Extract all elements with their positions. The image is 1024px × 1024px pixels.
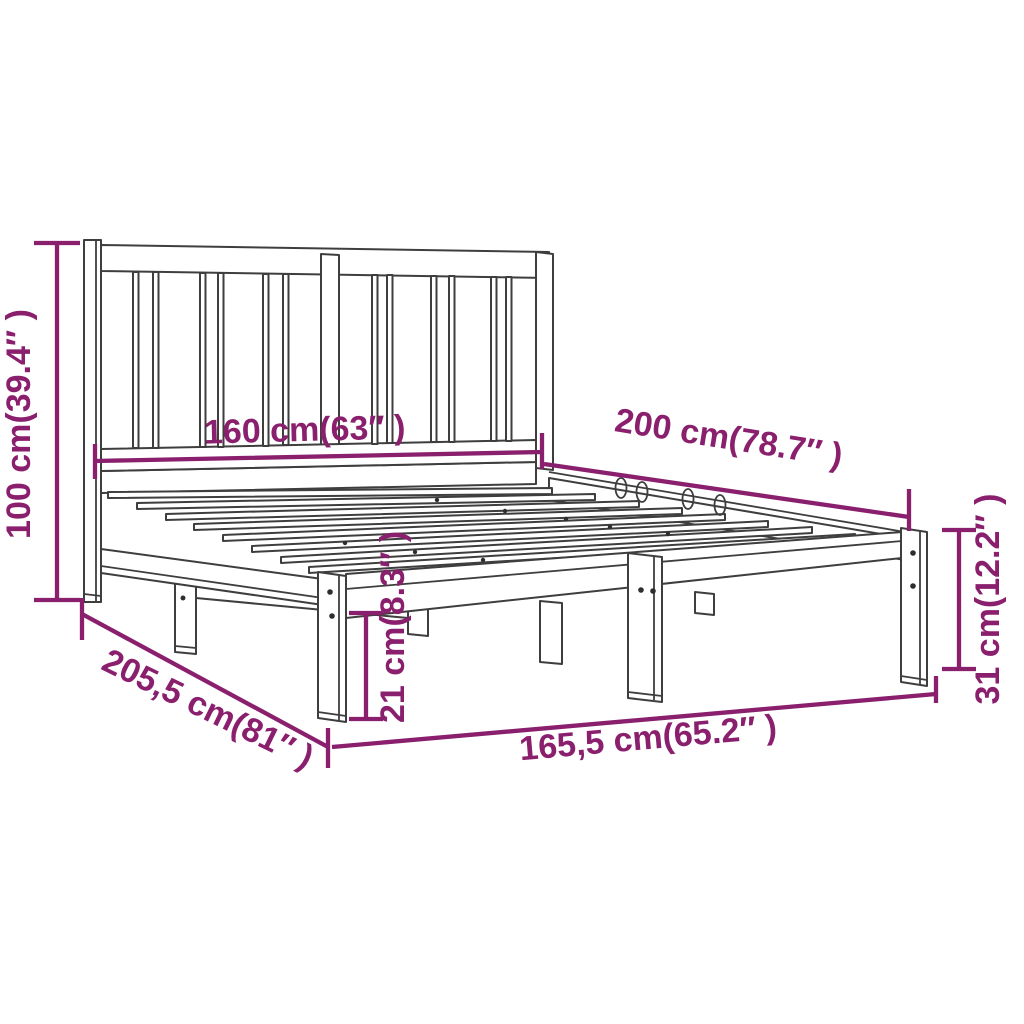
leg-screw [327,589,333,595]
leg-screw [650,588,656,594]
headboard-slat [133,272,139,448]
dimension-label-bed-length: 200 cm(78.7″ ) [612,401,845,474]
headboard-slat [153,272,159,448]
slat-screw [608,525,612,529]
dimension-label-total-length: 205,5 cm(81″ ) [96,642,319,777]
slat-screw [435,498,439,502]
frame-foot-rail [346,532,902,618]
near-corner-leg [318,572,346,722]
headboard-left-stile [84,240,101,602]
headboard-slat [506,277,512,441]
dimension-label-headboard-width: 160 cm(63″ ) [203,408,405,451]
dimension-label-under-frame-clearance: 21 cm(8.3″ ) [374,531,412,723]
headboard-slat [449,276,455,442]
slat-screw [481,558,485,562]
slat-screw [413,550,417,554]
dimension-total-length: 205,5 cm(81″ ) [82,598,328,777]
foot-corner-leg [901,528,927,686]
support-leg-far [695,592,714,615]
dimension-label-total-width: 165,5 cm(65.2″ ) [518,708,779,768]
leg-screw [181,596,186,601]
headboard-slat [491,277,497,441]
dimension-headboard-height: 100 cm(39.4″ ) [0,243,80,600]
slat-screw [564,517,568,521]
bed-drawing [84,240,927,722]
leg-screw [910,550,916,556]
dimension-label-frame-side-height: 31 cm(12.2″ ) [969,494,1007,705]
bed-frame-dimension-diagram: 100 cm(39.4″ ) 160 cm(63″ ) 200 cm(78.7″… [0,0,1024,1024]
dimension-line [34,243,80,600]
leg-screw [910,583,916,589]
leg-screw [329,613,335,619]
slat-screw [666,532,670,536]
leg-screw [638,587,644,593]
dimension-under-frame-clearance: 21 cm(8.3″ ) [349,531,412,723]
foot-middle-leg [628,553,662,702]
dimension-frame-side-height: 31 cm(12.2″ ) [942,494,1007,705]
dimension-label-headboard-height: 100 cm(39.4″ ) [0,309,38,539]
headboard-slat [431,276,437,442]
headboard-right-stile [536,252,553,470]
slat-screw [503,509,507,513]
support-leg-mid [540,601,562,664]
slat-screw [343,541,347,545]
